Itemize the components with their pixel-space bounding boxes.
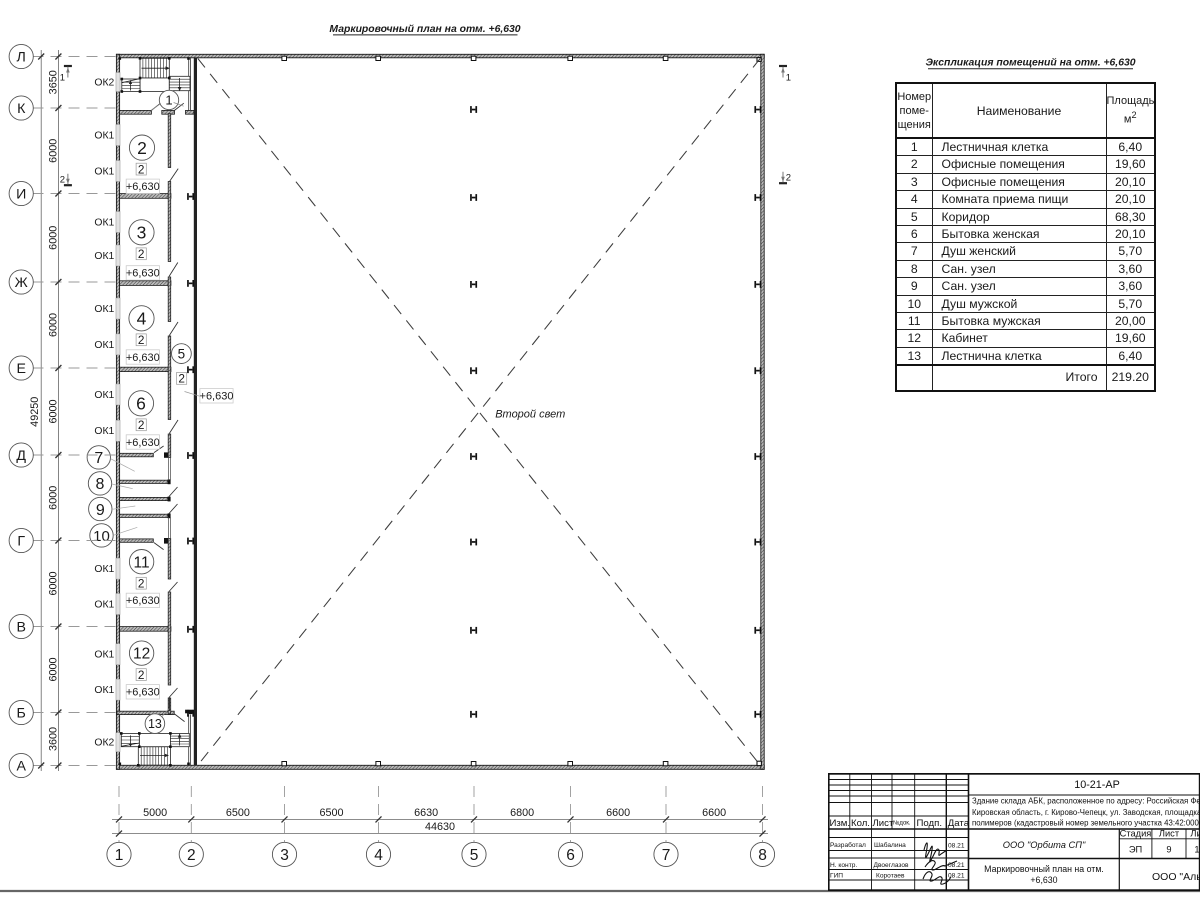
svg-text:ООО "Орбита СП": ООО "Орбита СП"	[1003, 840, 1086, 850]
svg-text:ЭП: ЭП	[1129, 845, 1142, 855]
svg-text:Н. контр.: Н. контр.	[830, 862, 857, 869]
svg-text:6800: 6800	[510, 807, 534, 819]
svg-text:+6,630: +6,630	[126, 687, 160, 699]
svg-text:Ж: Ж	[15, 275, 28, 291]
svg-text:+6,630: +6,630	[1030, 875, 1057, 885]
svg-text:3: 3	[280, 847, 289, 864]
svg-text:6600: 6600	[606, 807, 630, 819]
svg-text:08.21: 08.21	[948, 843, 965, 850]
svg-text:ОК1: ОК1	[94, 166, 114, 177]
svg-text:И: И	[16, 187, 26, 203]
svg-text:ОК1: ОК1	[94, 340, 114, 351]
svg-text:ОК1: ОК1	[94, 650, 114, 661]
svg-text:Е: Е	[16, 361, 25, 377]
svg-text:Маркировочный план на отм. +6,: Маркировочный план на отм. +6,630	[329, 24, 520, 35]
svg-text:+6,630: +6,630	[126, 595, 160, 607]
svg-text:6000: 6000	[48, 657, 60, 681]
svg-text:13: 13	[148, 717, 162, 731]
svg-text:Л: Л	[17, 50, 26, 66]
svg-text:6630: 6630	[414, 807, 438, 819]
svg-text:Д: Д	[16, 448, 26, 464]
svg-text:Коротаев: Коротаев	[876, 873, 905, 880]
svg-text:8: 8	[96, 476, 105, 493]
svg-text:2: 2	[138, 162, 145, 176]
svg-text:ООО "Альянс: ООО "Альянс	[1152, 871, 1200, 883]
svg-text:7: 7	[94, 450, 103, 467]
svg-text:+6,630: +6,630	[126, 352, 160, 364]
svg-text:4: 4	[137, 309, 147, 329]
svg-text:Б: Б	[17, 706, 26, 722]
svg-text:2: 2	[178, 372, 185, 386]
svg-text:Разработал: Разработал	[830, 841, 866, 849]
svg-text:ОК1: ОК1	[94, 304, 114, 315]
svg-text:ОК1: ОК1	[94, 390, 114, 401]
svg-text:2: 2	[138, 576, 145, 590]
svg-text:6: 6	[136, 394, 146, 414]
svg-text:1: 1	[786, 73, 791, 84]
svg-text:Двоеглазов: Двоеглазов	[874, 862, 910, 869]
svg-text:6000: 6000	[48, 399, 60, 423]
svg-text:Кировская область, г. Кирово-Ч: Кировская область, г. Кирово-Чепецк, ул.…	[972, 808, 1200, 817]
svg-text:1: 1	[165, 93, 172, 108]
svg-text:6000: 6000	[48, 139, 60, 163]
svg-text:6000: 6000	[48, 313, 60, 337]
svg-text:№док.: №док.	[893, 820, 911, 827]
svg-text:2: 2	[138, 247, 145, 261]
svg-text:полимеров (кадастровый номер з: полимеров (кадастровый номер земельного …	[972, 819, 1200, 828]
svg-text:08.21: 08.21	[948, 862, 965, 869]
svg-text:2: 2	[138, 333, 145, 347]
svg-text:ОК1: ОК1	[94, 217, 114, 228]
svg-text:Шабалина: Шабалина	[874, 841, 906, 849]
svg-text:3: 3	[137, 223, 147, 243]
svg-text:Ли: Ли	[1190, 829, 1200, 839]
svg-text:В: В	[16, 620, 25, 636]
svg-text:+6,630: +6,630	[126, 268, 160, 280]
svg-text:11: 11	[134, 554, 150, 571]
svg-text:Экспликация помещений на отм.: Экспликация помещений на отм. +6,630	[925, 57, 1135, 68]
svg-text:Кол.: Кол.	[851, 818, 870, 829]
svg-text:3650: 3650	[48, 70, 60, 94]
svg-text:5000: 5000	[143, 807, 167, 819]
svg-text:1: 1	[1194, 845, 1199, 855]
svg-text:6000: 6000	[48, 226, 60, 250]
svg-text:+6,630: +6,630	[126, 437, 160, 449]
svg-text:10-21-АР: 10-21-АР	[1074, 779, 1120, 791]
svg-text:К: К	[17, 101, 26, 117]
svg-text:4: 4	[374, 847, 383, 864]
svg-text:6600: 6600	[702, 807, 726, 819]
svg-text:ОК1: ОК1	[94, 426, 114, 437]
svg-text:6000: 6000	[48, 486, 60, 510]
svg-text:ОК1: ОК1	[94, 599, 114, 610]
svg-text:Изм.: Изм.	[830, 818, 851, 829]
svg-text:Дата: Дата	[948, 818, 970, 829]
svg-text:ОК2: ОК2	[94, 77, 114, 88]
svg-text:ГИП: ГИП	[830, 873, 843, 880]
svg-text:Стадия: Стадия	[1120, 829, 1152, 839]
svg-text:5: 5	[178, 347, 186, 362]
svg-text:2: 2	[786, 173, 791, 184]
svg-text:2: 2	[187, 847, 196, 864]
svg-text:+6,630: +6,630	[126, 181, 160, 193]
svg-text:ОК1: ОК1	[94, 564, 114, 575]
svg-text:Здание склада АБК, расположенн: Здание склада АБК, расположенное по адре…	[972, 797, 1200, 806]
svg-text:2: 2	[138, 668, 145, 682]
svg-text:2: 2	[60, 175, 65, 186]
svg-text:9: 9	[1166, 845, 1171, 855]
svg-text:Лист: Лист	[873, 818, 894, 829]
svg-text:10: 10	[93, 528, 110, 545]
svg-text:7: 7	[662, 847, 671, 864]
svg-text:1: 1	[115, 847, 124, 864]
svg-text:Г: Г	[17, 534, 25, 550]
svg-text:3600: 3600	[48, 727, 60, 751]
svg-text:2: 2	[138, 418, 145, 432]
svg-text:Лист: Лист	[1159, 829, 1180, 839]
svg-text:А: А	[16, 759, 26, 775]
svg-text:ОК2: ОК2	[94, 738, 114, 749]
svg-text:9: 9	[96, 502, 105, 519]
svg-text:+6,630: +6,630	[200, 391, 234, 403]
svg-text:ОК1: ОК1	[94, 130, 114, 141]
svg-text:6: 6	[566, 847, 575, 864]
svg-text:6500: 6500	[226, 807, 250, 819]
svg-text:8: 8	[758, 847, 767, 864]
svg-text:ОК1: ОК1	[94, 251, 114, 262]
svg-text:5: 5	[470, 847, 479, 864]
svg-text:Подп.: Подп.	[917, 818, 942, 829]
svg-text:44630: 44630	[425, 821, 455, 833]
svg-text:12: 12	[133, 646, 150, 663]
svg-text:2: 2	[137, 138, 147, 158]
svg-text:6000: 6000	[48, 571, 60, 595]
svg-text:Маркировочный план на отм.: Маркировочный план на отм.	[984, 864, 1104, 874]
svg-text:1: 1	[60, 73, 65, 84]
svg-text:49250: 49250	[29, 397, 41, 427]
svg-text:Второй свет: Второй свет	[495, 409, 565, 421]
svg-text:ОК1: ОК1	[94, 685, 114, 696]
svg-text:6500: 6500	[319, 807, 343, 819]
